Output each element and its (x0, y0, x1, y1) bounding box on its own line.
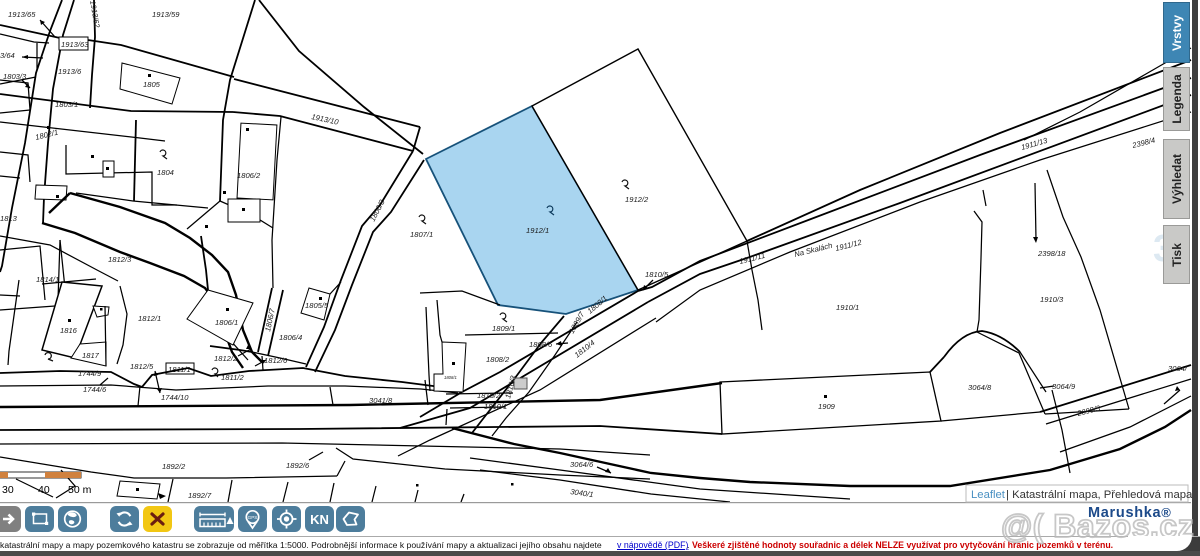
svg-text:1744/9: 1744/9 (78, 369, 102, 378)
svg-text:1817: 1817 (82, 351, 100, 360)
svg-text:1810/2: 1810/2 (477, 391, 501, 400)
svg-text:KN: KN (310, 512, 329, 527)
svg-text:| Katastrální mapa, Přehledová: | Katastrální mapa, Přehledová mapa (1006, 489, 1192, 501)
svg-text:40: 40 (38, 484, 50, 496)
svg-text:1803/3: 1803/3 (3, 72, 27, 81)
svg-text:1809/1: 1809/1 (492, 324, 515, 333)
svg-text:3064/9: 3064/9 (1052, 382, 1076, 391)
svg-text:1913/6: 1913/6 (58, 67, 82, 76)
svg-text:1910/3: 1910/3 (1040, 295, 1064, 304)
svg-text:2398/18: 2398/18 (1037, 249, 1066, 258)
svg-text:1910/1: 1910/1 (836, 303, 859, 312)
svg-text:1913/65: 1913/65 (8, 10, 36, 19)
svg-text:50 m: 50 m (68, 484, 92, 496)
svg-text:1807/1: 1807/1 (410, 230, 433, 239)
svg-text:1892/7: 1892/7 (188, 491, 212, 500)
svg-text:1812/5: 1812/5 (130, 362, 154, 371)
svg-text:1812/2: 1812/2 (214, 354, 238, 363)
svg-text:3064/: 3064/ (1168, 364, 1188, 373)
svg-text:1744/6: 1744/6 (83, 385, 107, 394)
svg-text:1744/10: 1744/10 (161, 393, 189, 402)
svg-text:1808/2: 1808/2 (486, 355, 510, 364)
svg-text:1909: 1909 (818, 402, 836, 411)
svg-text:1812/1: 1812/1 (138, 314, 161, 323)
svg-text:1892/6: 1892/6 (286, 461, 310, 470)
svg-text:1913/59: 1913/59 (152, 10, 180, 19)
svg-text:1808/6: 1808/6 (529, 340, 553, 349)
svg-text:1816: 1816 (60, 326, 78, 335)
svg-text:1803/1: 1803/1 (55, 100, 78, 109)
svg-text:1912/2: 1912/2 (625, 195, 649, 204)
svg-text:3064/6: 3064/6 (570, 460, 594, 469)
svg-text:1806/4: 1806/4 (279, 333, 302, 342)
svg-text:1912/1: 1912/1 (526, 226, 549, 235)
svg-text:1808/1: 1808/1 (444, 375, 457, 380)
svg-text:GPS: GPS (248, 515, 258, 520)
svg-text:1814/1: 1814/1 (36, 275, 59, 284)
svg-text:1806/1: 1806/1 (215, 318, 238, 327)
svg-text:1813: 1813 (0, 214, 18, 223)
svg-text:30: 30 (2, 484, 14, 496)
svg-text:1806/2: 1806/2 (237, 171, 261, 180)
svg-text:1913/63: 1913/63 (61, 40, 89, 49)
svg-text:3064/8: 3064/8 (968, 383, 992, 392)
svg-text:3/64: 3/64 (0, 51, 15, 60)
svg-text:Leaflet: Leaflet (971, 489, 1006, 501)
svg-text:1810/5: 1810/5 (645, 270, 669, 279)
svg-text:1892/2: 1892/2 (162, 462, 186, 471)
svg-text:1805: 1805 (143, 80, 161, 89)
svg-text:1805/5: 1805/5 (305, 301, 329, 310)
svg-text:1812/3: 1812/3 (108, 255, 132, 264)
svg-text:1804: 1804 (157, 168, 174, 177)
svg-text:1812/6: 1812/6 (264, 356, 288, 365)
